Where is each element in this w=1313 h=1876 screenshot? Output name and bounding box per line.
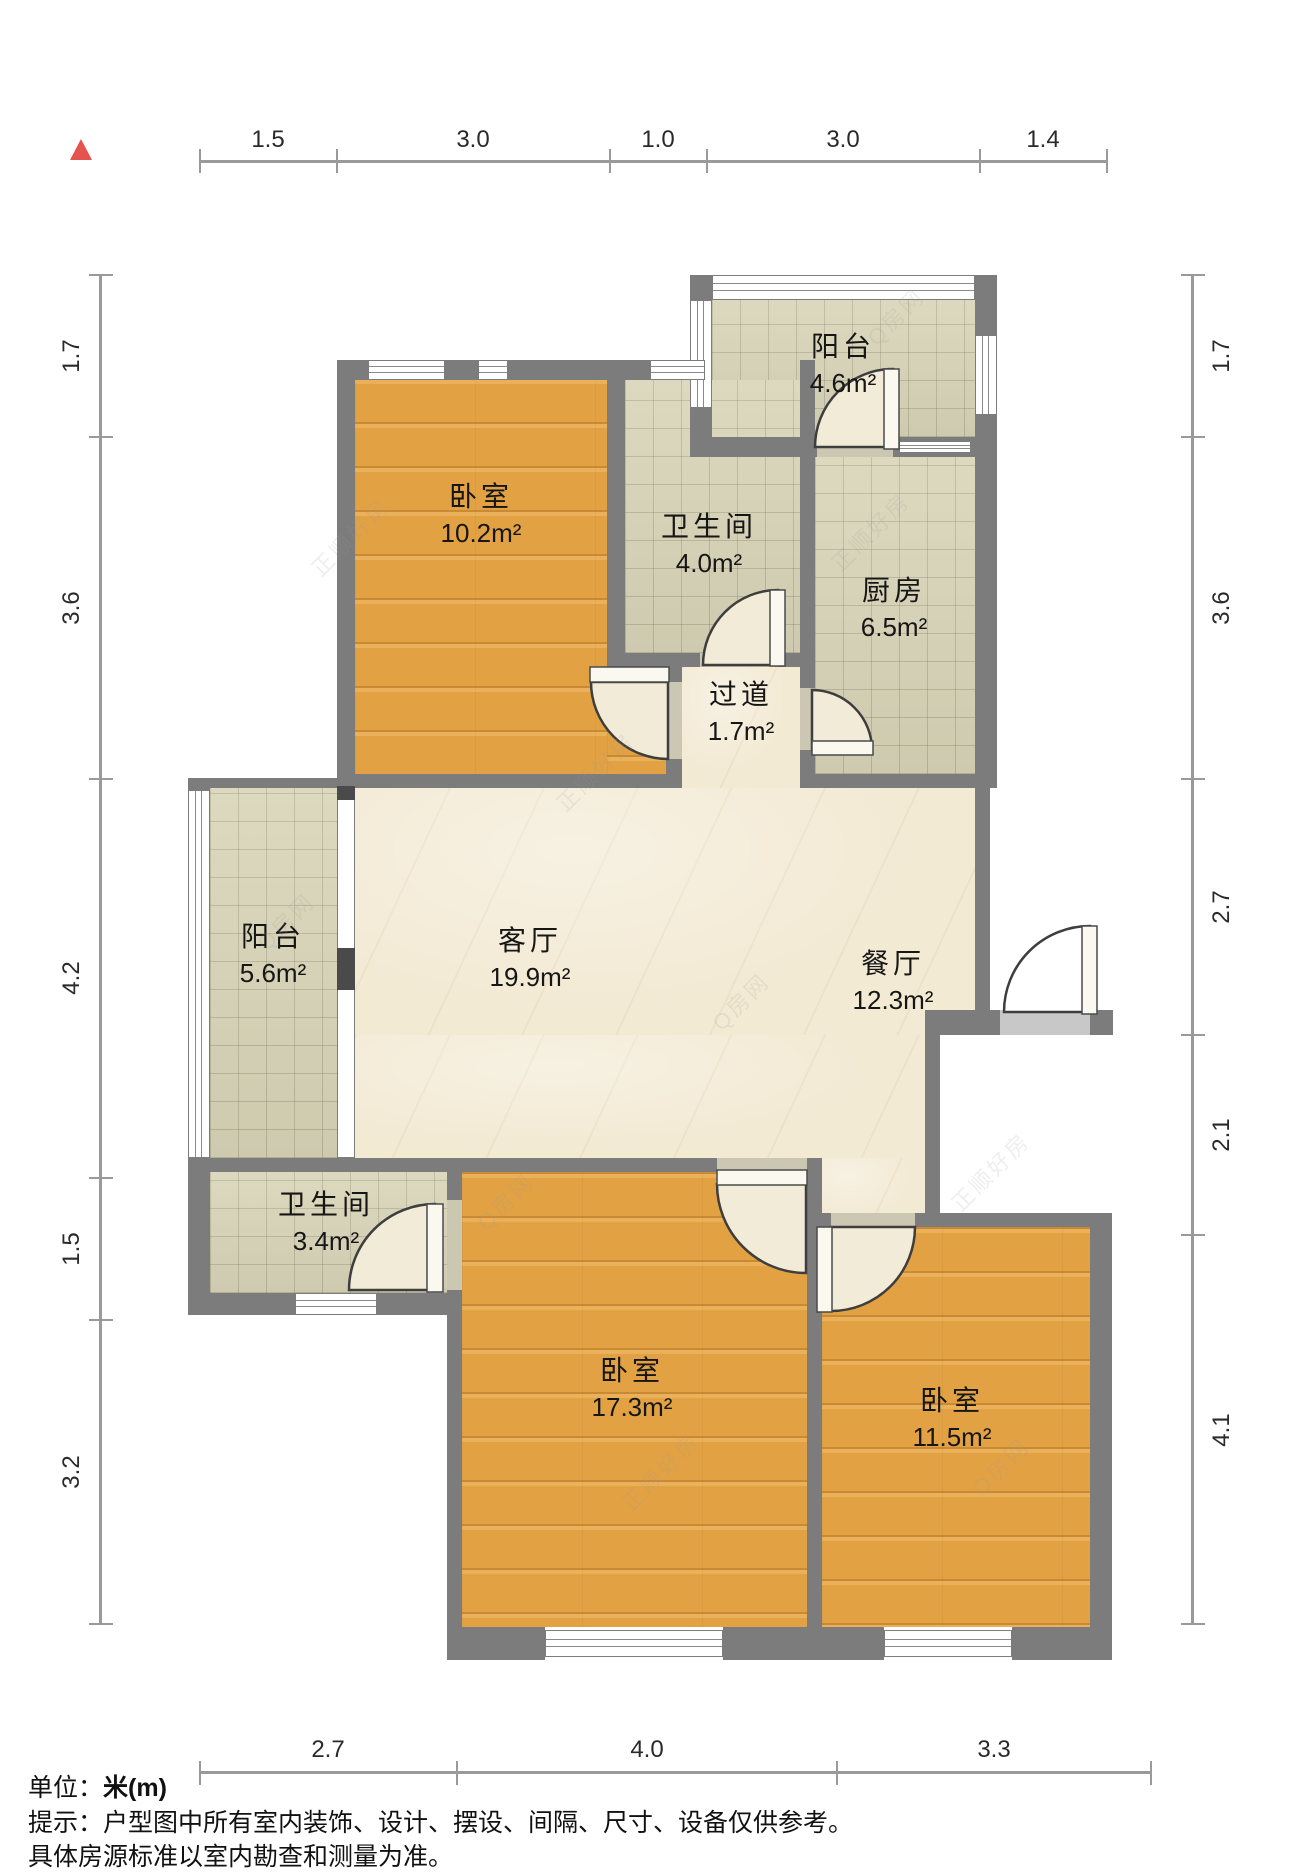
dim-label: 3.6	[1208, 591, 1236, 624]
door-entry	[1004, 926, 1097, 1014]
dim-label: 1.5	[58, 1232, 86, 1265]
dim-label: 4.2	[58, 961, 86, 994]
dim-tick	[1150, 1761, 1152, 1785]
door-layer	[0, 0, 1313, 1876]
dim-tick	[89, 274, 113, 276]
dim-label: 3.0	[456, 126, 489, 154]
footer-tip-line-2: 具体房源标准以室内勘查和测量为准。	[28, 1837, 453, 1873]
room-label-dining-room: 餐厅12.3m²	[853, 945, 934, 1018]
dim-tick	[1181, 274, 1205, 276]
dim-label: 4.1	[1208, 1413, 1236, 1446]
room-label-bedroom-1: 卧室10.2m²	[441, 478, 522, 551]
dim-tick	[456, 1761, 458, 1785]
dim-tick	[609, 149, 611, 173]
door-bedroom-1	[590, 667, 669, 759]
room-label-balcony-top: 阳台4.6m²	[810, 328, 876, 401]
dim-label: 3.6	[58, 591, 86, 624]
dim-label: 1.7	[58, 339, 86, 372]
dim-label: 1.0	[641, 126, 674, 154]
dim-tick	[89, 1177, 113, 1179]
footer-tip-line-1: 提示：户型图中所有室内装饰、设计、摆设、间隔、尺寸、设备仅供参考。	[28, 1803, 853, 1839]
dim-label: 3.0	[826, 126, 859, 154]
door-bathroom-1	[703, 590, 785, 666]
room-label-balcony-left: 阳台5.6m²	[240, 918, 306, 991]
dim-tick	[979, 149, 981, 173]
dim-line-left	[99, 275, 102, 1624]
footer-unit-value: 米(m)	[103, 1774, 167, 1802]
room-label-bathroom-1: 卫生间4.0m²	[661, 508, 757, 581]
door-kitchen	[812, 690, 873, 755]
dim-tick	[1181, 778, 1205, 780]
dim-line-right	[1191, 275, 1194, 1624]
dim-line-bottom	[200, 1771, 1151, 1774]
dim-label: 1.7	[1208, 339, 1236, 372]
floor-plan-canvas: 阳台4.6m² 卧室10.2m² 卫生间4.0m² 厨房6.5m² 过道1.7m…	[0, 0, 1313, 1876]
dim-label: 1.4	[1026, 126, 1059, 154]
room-label-bathroom-2: 卫生间3.4m²	[278, 1186, 374, 1259]
dim-label: 2.7	[1208, 890, 1236, 923]
dim-tick	[199, 1761, 201, 1785]
room-label-hallway: 过道1.7m²	[708, 676, 774, 749]
dim-tick	[89, 1319, 113, 1321]
dim-label: 4.0	[630, 1736, 663, 1764]
room-label-kitchen: 厨房6.5m²	[861, 572, 927, 645]
dim-label: 3.3	[977, 1736, 1010, 1764]
dim-tick	[1181, 1623, 1205, 1625]
room-label-living-room: 客厅19.9m²	[490, 922, 571, 995]
dim-tick	[89, 436, 113, 438]
dim-tick	[1181, 1034, 1205, 1036]
dim-tick	[199, 149, 201, 173]
dim-tick	[836, 1761, 838, 1785]
dim-tick	[336, 149, 338, 173]
footer-unit-line: 单位：米(m)	[28, 1768, 167, 1804]
dim-label: 2.7	[311, 1736, 344, 1764]
dim-tick	[89, 1623, 113, 1625]
dim-tick	[89, 778, 113, 780]
dim-tick	[706, 149, 708, 173]
dim-label: 3.2	[58, 1455, 86, 1488]
room-label-bedroom-3: 卧室11.5m²	[913, 1382, 992, 1455]
door-bedroom-3	[817, 1227, 915, 1312]
dim-tick	[1181, 1234, 1205, 1236]
door-bedroom-2	[717, 1170, 807, 1273]
room-label-bedroom-2: 卧室17.3m²	[592, 1352, 673, 1425]
dim-label: 1.5	[251, 126, 284, 154]
dim-label: 2.1	[1208, 1118, 1236, 1151]
footer-unit-prefix: 单位：	[28, 1774, 103, 1802]
dim-tick	[1181, 436, 1205, 438]
dim-tick	[1106, 149, 1108, 173]
